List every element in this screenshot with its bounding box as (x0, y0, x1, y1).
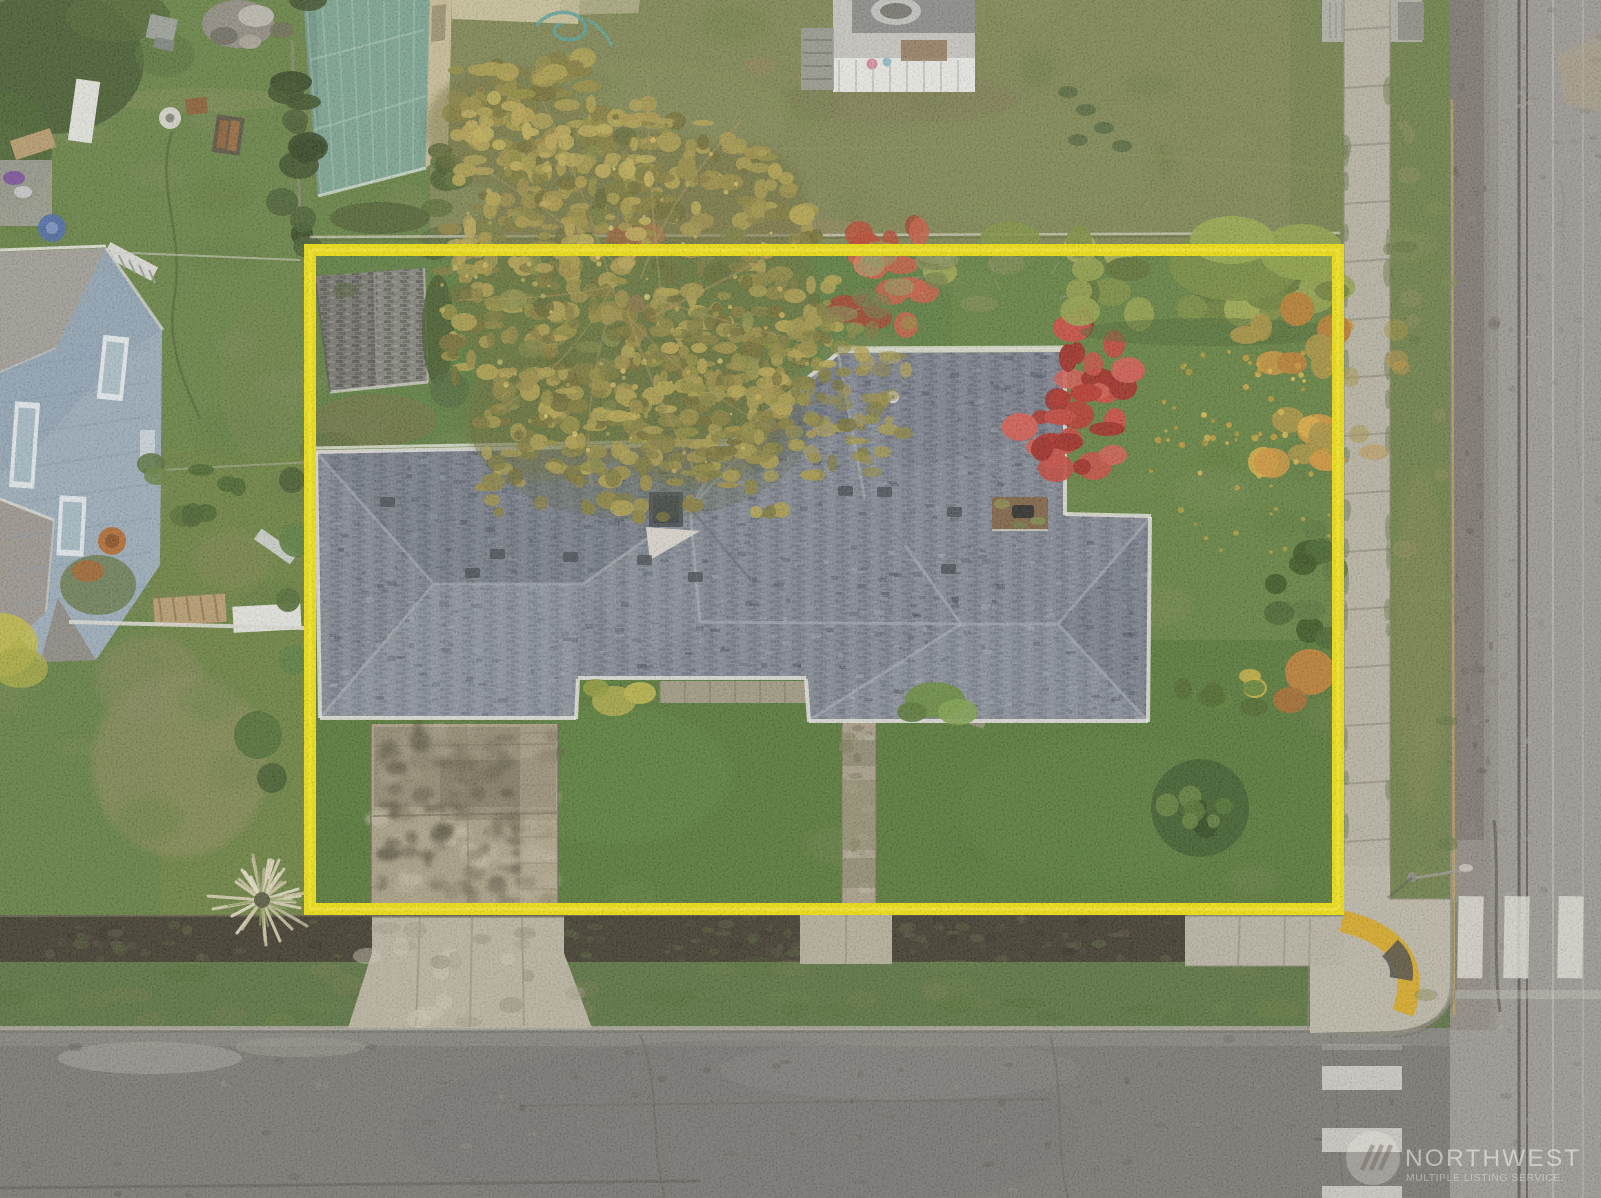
svg-text:MULTIPLE LISTING SERVICE.: MULTIPLE LISTING SERVICE. (1406, 1173, 1564, 1184)
svg-text:NORTHWEST: NORTHWEST (1405, 1145, 1581, 1172)
